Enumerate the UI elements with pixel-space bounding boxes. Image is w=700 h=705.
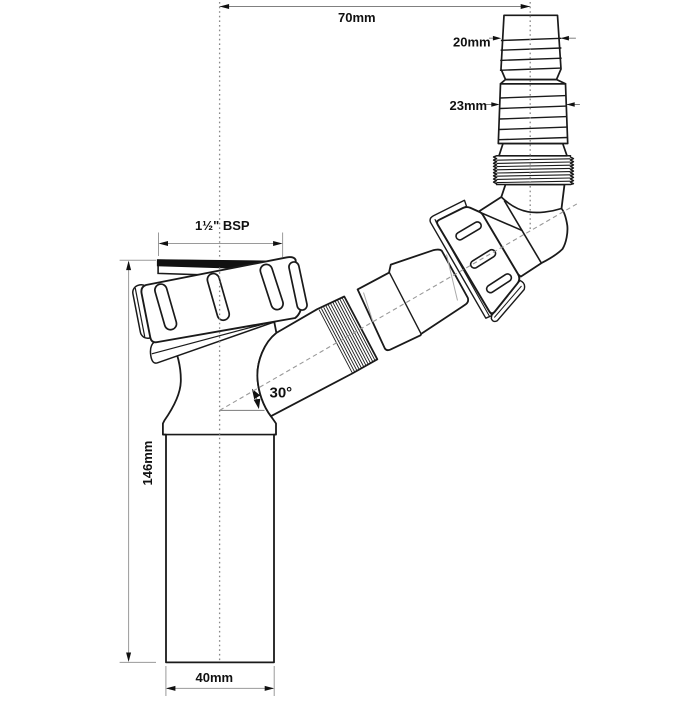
svg-text:23mm: 23mm <box>450 98 488 113</box>
svg-text:30°: 30° <box>270 385 293 402</box>
svg-text:20mm: 20mm <box>453 35 491 50</box>
svg-text:40mm: 40mm <box>196 670 234 685</box>
svg-text:70mm: 70mm <box>338 10 376 25</box>
svg-text:146mm: 146mm <box>140 441 155 486</box>
svg-text:1½" BSP: 1½" BSP <box>195 218 250 233</box>
